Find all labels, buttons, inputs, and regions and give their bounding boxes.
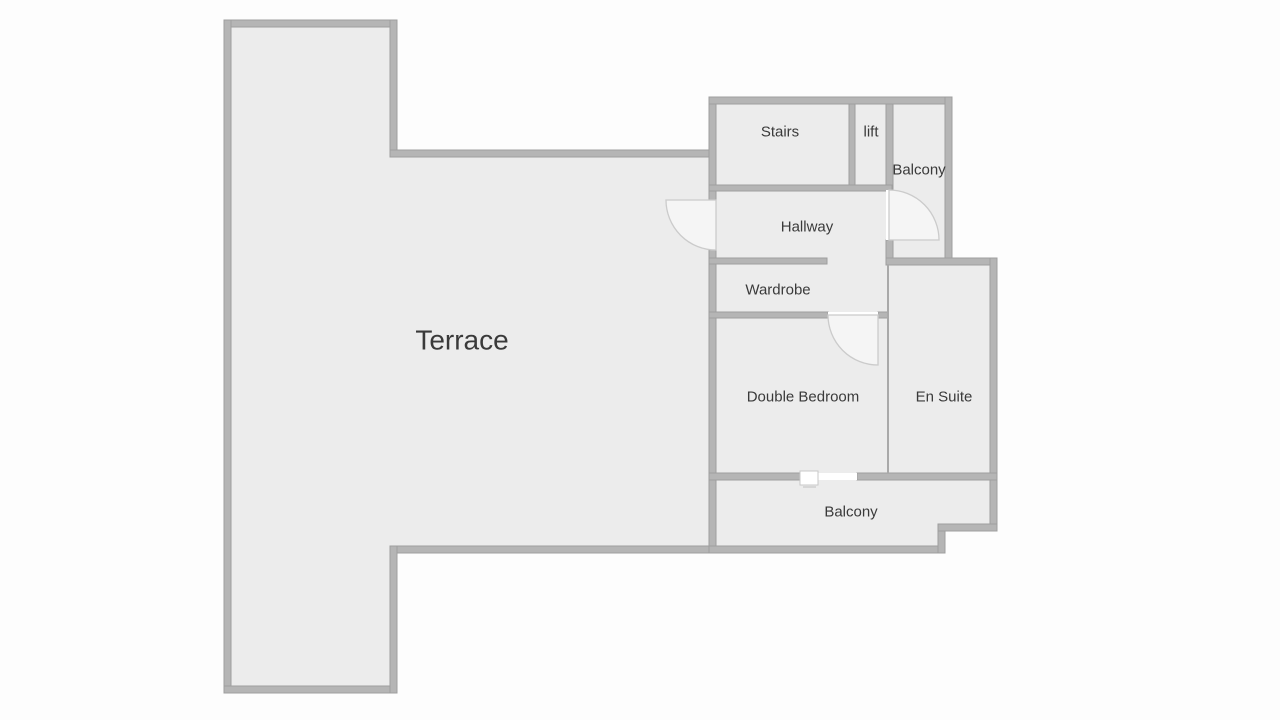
- room-label-balcony-bottom: Balcony: [824, 504, 878, 521]
- room-label-lift: lift: [864, 124, 880, 141]
- wall-segment: [709, 250, 716, 553]
- wall-segment: [709, 97, 952, 104]
- wall-segment: [945, 97, 952, 265]
- partition-line: [887, 265, 889, 473]
- wall-segment: [709, 546, 945, 553]
- room-label-terrace: Terrace: [415, 325, 508, 356]
- room-label-balcony-top: Balcony: [892, 162, 946, 179]
- wall-segment: [990, 258, 997, 531]
- wall-segment: [390, 546, 397, 693]
- wall-segment: [224, 20, 397, 27]
- wall-segment: [849, 104, 855, 189]
- wall-segment: [224, 20, 231, 693]
- room-label-en-suite: En Suite: [916, 389, 973, 406]
- wall-segment: [857, 473, 997, 480]
- floorplan-canvas: TerraceStairsliftBalconyHallwayWardrobeD…: [0, 0, 1280, 720]
- room-label-stairs: Stairs: [761, 124, 799, 141]
- balcony-slider: [800, 471, 818, 485]
- wall-segment: [878, 312, 888, 318]
- wall-segment: [709, 258, 827, 264]
- wall-segment: [938, 524, 997, 531]
- wall-segment: [709, 473, 802, 480]
- floorplan-viewer: TerraceStairsliftBalconyHallwayWardrobeD…: [0, 0, 1280, 720]
- wall-segment: [390, 150, 716, 157]
- wall-segment: [224, 686, 397, 693]
- room-label-hallway: Hallway: [781, 219, 834, 236]
- wall-segment: [390, 20, 397, 157]
- wall-segment: [886, 258, 997, 265]
- balcony-slider-dash: [803, 486, 816, 488]
- terrace-floor: [224, 20, 716, 693]
- room-label-double-bedroom: Double Bedroom: [747, 389, 860, 406]
- wall-segment: [709, 185, 892, 191]
- ensuite-floor: [886, 258, 997, 480]
- room-label-wardrobe: Wardrobe: [745, 282, 810, 299]
- wall-segment: [709, 312, 828, 318]
- wall-segment: [390, 546, 716, 553]
